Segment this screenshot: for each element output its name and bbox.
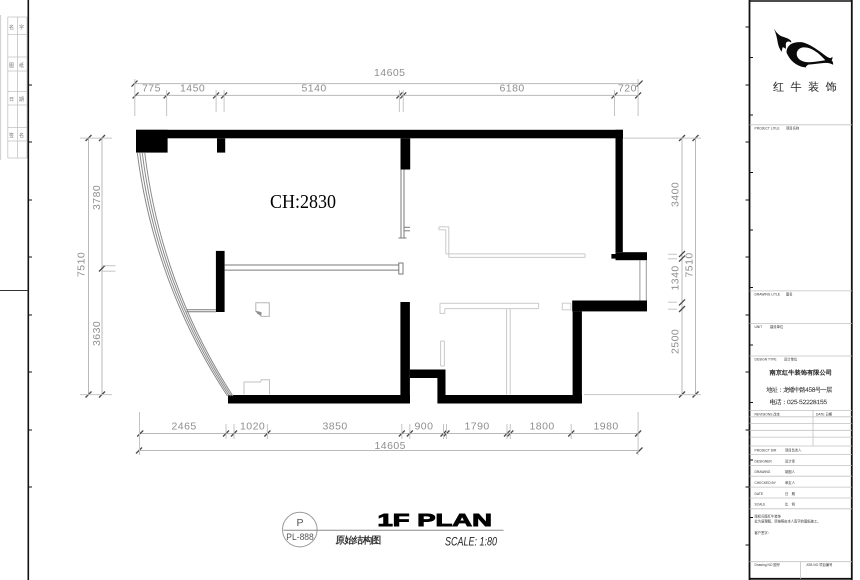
svg-text:1790: 1790 bbox=[465, 421, 490, 433]
svg-text:PROJECT LITLE: PROJECT LITLE bbox=[755, 126, 781, 130]
svg-text:名: 名 bbox=[9, 24, 14, 31]
svg-text:期: 期 bbox=[19, 97, 24, 103]
svg-text:JOB NO 项目编号: JOB NO 项目编号 bbox=[806, 562, 833, 567]
svg-text:SCALE: 1:80: SCALE: 1:80 bbox=[445, 535, 497, 549]
svg-text:2465: 2465 bbox=[172, 421, 197, 433]
svg-text:P: P bbox=[297, 517, 304, 529]
svg-text:775: 775 bbox=[142, 83, 161, 95]
svg-text:PROJECT DIR: PROJECT DIR bbox=[755, 449, 778, 453]
svg-text:日 期: 日 期 bbox=[785, 491, 796, 496]
svg-text:1340: 1340 bbox=[670, 265, 682, 290]
svg-text:1800: 1800 bbox=[530, 421, 555, 433]
svg-text:6180: 6180 bbox=[500, 83, 525, 95]
svg-text:字: 字 bbox=[19, 24, 24, 31]
svg-text:建设单位: 建设单位 bbox=[770, 324, 784, 329]
svg-text:项目名称: 项目名称 bbox=[786, 125, 800, 130]
svg-text:CHECKED BY: CHECKED BY bbox=[755, 481, 777, 485]
svg-text:SCALE: SCALE bbox=[755, 503, 767, 507]
svg-text:纸: 纸 bbox=[19, 62, 24, 69]
svg-text:3850: 3850 bbox=[323, 421, 348, 433]
svg-text:14605: 14605 bbox=[375, 440, 406, 452]
svg-text:DRAWING LITLE: DRAWING LITLE bbox=[755, 293, 781, 297]
svg-text:DESIGNER: DESIGNER bbox=[755, 459, 773, 463]
svg-text:签: 签 bbox=[9, 132, 14, 139]
svg-text:REVISIONS 改本: REVISIONS 改本 bbox=[755, 411, 781, 416]
svg-text:审定人: 审定人 bbox=[785, 480, 796, 485]
svg-text:3400: 3400 bbox=[670, 182, 682, 207]
svg-text:版权归属红牛装饰: 版权归属红牛装饰 bbox=[755, 514, 782, 519]
svg-text:720: 720 bbox=[618, 83, 637, 95]
svg-text:7510: 7510 bbox=[76, 252, 88, 277]
svg-text:DRAWING: DRAWING bbox=[755, 470, 771, 474]
svg-text:日: 日 bbox=[9, 97, 14, 103]
svg-text:DATE: DATE bbox=[755, 492, 764, 496]
svg-text:DATE 日期: DATE 日期 bbox=[816, 411, 833, 416]
svg-text:DESIGN TYPE: DESIGN TYPE bbox=[755, 358, 778, 362]
svg-text:5140: 5140 bbox=[302, 83, 327, 95]
svg-text:1020: 1020 bbox=[240, 421, 265, 433]
svg-text:900: 900 bbox=[415, 421, 434, 433]
svg-text:制图人: 制图人 bbox=[785, 469, 796, 474]
svg-text:设计师: 设计师 bbox=[785, 458, 796, 463]
svg-text:UNIT: UNIT bbox=[755, 325, 763, 329]
svg-text:1450: 1450 bbox=[180, 83, 205, 95]
svg-text:Drawing NO 图号: Drawing NO 图号 bbox=[755, 562, 781, 567]
svg-text:3780: 3780 bbox=[91, 185, 103, 210]
svg-text:客户签字：: 客户签字： bbox=[755, 530, 771, 535]
svg-text:PL-888: PL-888 bbox=[286, 532, 314, 543]
svg-text:1980: 1980 bbox=[594, 421, 619, 433]
svg-text:设计单位: 设计单位 bbox=[784, 357, 798, 362]
svg-text:14605: 14605 bbox=[374, 67, 405, 79]
svg-text:图名: 图名 bbox=[786, 292, 793, 297]
svg-text:CH:2830: CH:2830 bbox=[270, 191, 336, 213]
svg-text:项目负责人: 项目负责人 bbox=[785, 448, 802, 453]
svg-text:名: 名 bbox=[19, 132, 24, 139]
svg-text:2500: 2500 bbox=[670, 329, 682, 354]
svg-text:7510: 7510 bbox=[684, 252, 696, 277]
svg-text:比 例: 比 例 bbox=[785, 502, 796, 507]
svg-text:此为原理解，须按照由本人签字的图纸施工。: 此为原理解，须按照由本人签字的图纸施工。 bbox=[755, 519, 821, 524]
svg-text:3630: 3630 bbox=[91, 321, 103, 346]
svg-text:图: 图 bbox=[9, 63, 14, 69]
svg-text:1F PLAN: 1F PLAN bbox=[378, 510, 493, 530]
